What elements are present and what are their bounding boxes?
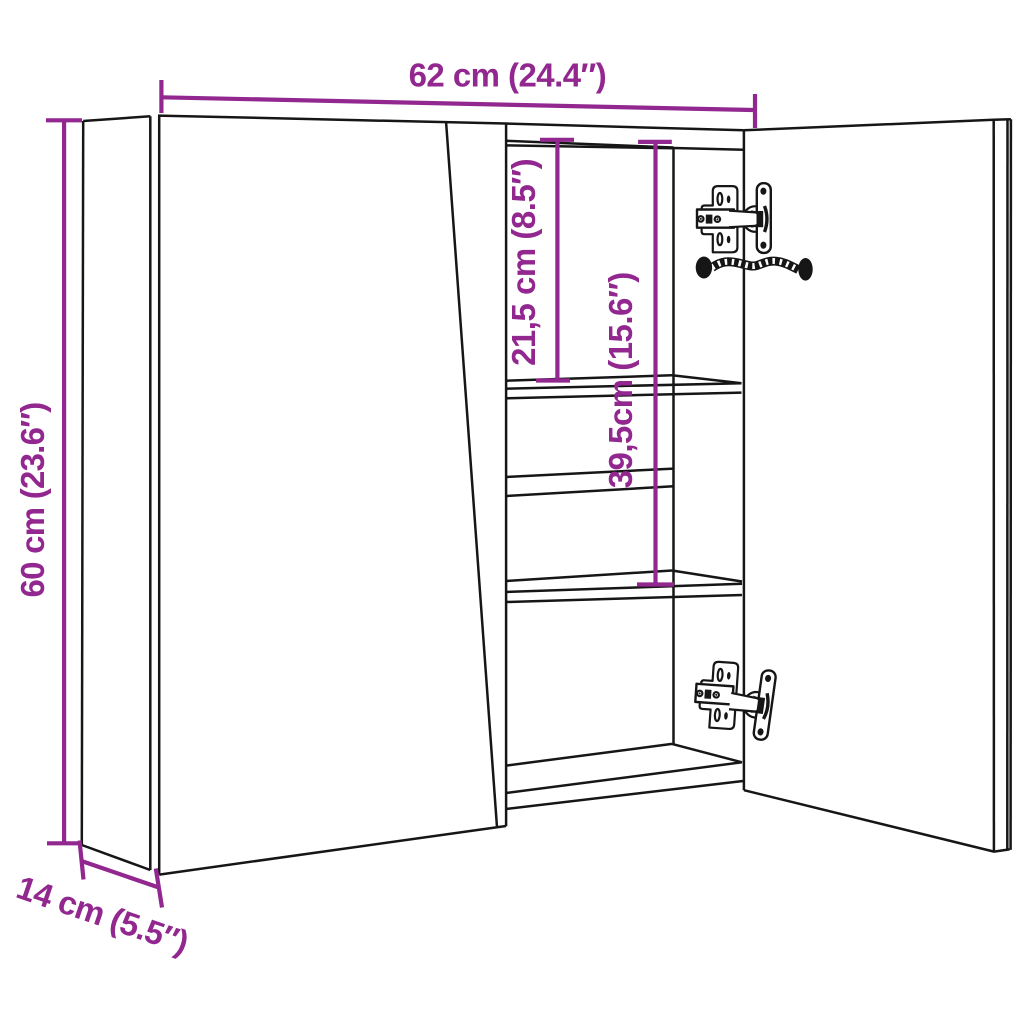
- svg-text:39,5cm (15.6″): 39,5cm (15.6″): [602, 272, 639, 488]
- svg-text:60 cm (23.6″): 60 cm (23.6″): [14, 402, 51, 597]
- svg-text:62 cm (24.4″): 62 cm (24.4″): [409, 57, 607, 94]
- svg-text:21,5 cm (8.5″): 21,5 cm (8.5″): [505, 159, 542, 366]
- svg-text:14 cm (5.5″): 14 cm (5.5″): [12, 868, 193, 961]
